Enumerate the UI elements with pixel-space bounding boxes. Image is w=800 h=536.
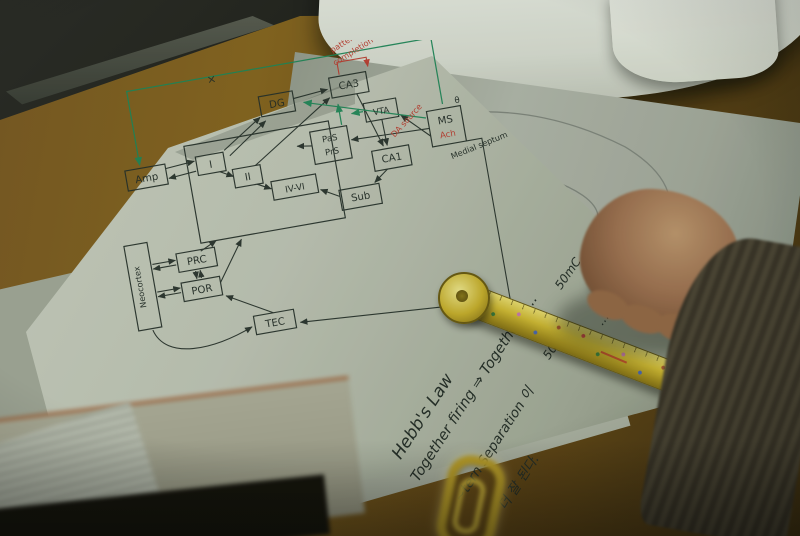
layer1-label: I <box>209 160 214 171</box>
prc-label: PRC <box>186 254 207 268</box>
ms-label: MS <box>437 114 454 127</box>
ach-label: Ach <box>439 129 456 142</box>
vta-label: VTA <box>372 106 390 119</box>
ca3-label: CA3 <box>338 78 360 92</box>
box-ms <box>426 106 466 147</box>
diagram-boxes <box>101 56 493 354</box>
theta-label: θ <box>454 96 461 107</box>
por-label: POR <box>191 283 214 298</box>
prs-label: PrS <box>324 146 340 158</box>
ruler-rivet <box>456 290 468 302</box>
medial-septum-label: Medial septum <box>449 129 509 161</box>
sub-label: Sub <box>350 190 371 204</box>
box-ec <box>184 121 345 243</box>
photo-scene: Hippocampus <box>0 0 800 536</box>
dg-label: DG <box>268 98 285 112</box>
layer46-label: IV-VI <box>285 182 306 195</box>
x-mark: × <box>206 72 217 86</box>
amp-label: Amp <box>134 171 159 186</box>
box-pas-prs <box>310 126 353 165</box>
layer2-label: II <box>244 172 252 184</box>
ca1-label: CA1 <box>381 151 403 165</box>
paper-stack-fold <box>609 0 780 87</box>
da-source-label: DA source <box>389 102 424 140</box>
pas-label: PaS <box>321 133 338 146</box>
tec-label: TEC <box>264 316 286 330</box>
